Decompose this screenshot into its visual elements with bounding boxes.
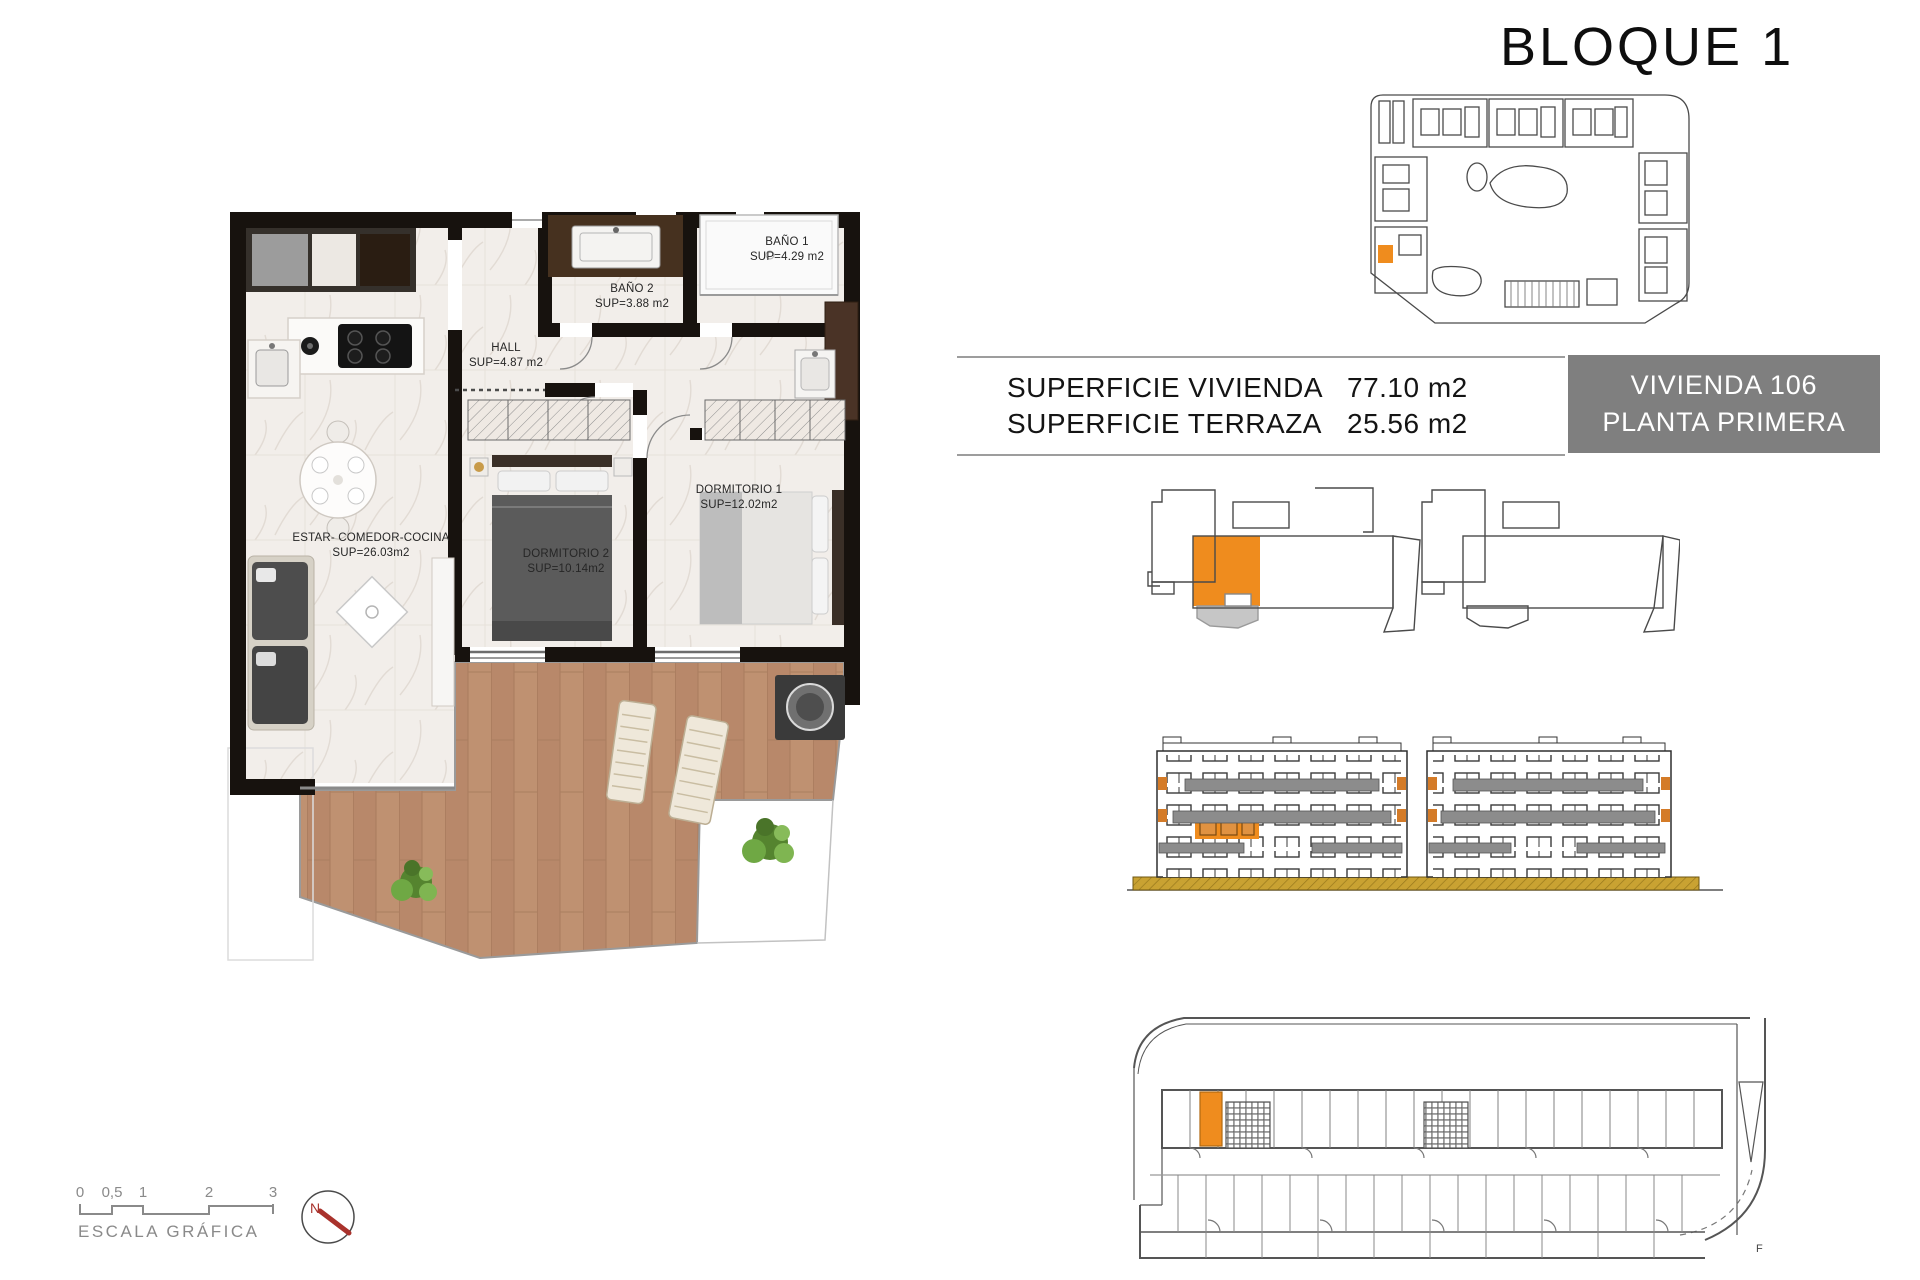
apartment-floor-plan — [215, 200, 875, 980]
building-elevation-right — [1427, 737, 1671, 877]
garage-plan: F — [1120, 1000, 1800, 1280]
surface-value: 77.10 m2 — [1347, 372, 1565, 404]
bathroom2-fixtures — [548, 215, 683, 277]
stair-core — [1424, 1102, 1468, 1148]
north-compass-icon: N — [296, 1185, 360, 1249]
scale-tick: 2 — [205, 1184, 213, 1201]
unit-number: VIVIENDA 106 — [1631, 367, 1818, 404]
ground-wall — [1133, 877, 1699, 890]
room-label-dormitorio2: DORMITORIO 2SUP=10.14m2 — [523, 547, 610, 577]
unit-location-plan — [1140, 480, 1680, 645]
highlighted-terrace-plan — [1197, 606, 1258, 628]
plan-corner-mark: F — [1756, 1243, 1763, 1255]
room-label-hall: HALLSUP=4.87 m2 — [469, 341, 543, 371]
surface-label: SUPERFICIE VIVIENDA — [1007, 372, 1347, 404]
highlighted-unit-site — [1378, 245, 1393, 263]
scale-caption: ESCALA GRÁFICA — [78, 1222, 259, 1242]
stair-core — [1226, 1102, 1270, 1148]
scale-tick: 3 — [269, 1184, 277, 1201]
water-heater — [775, 675, 845, 740]
plant — [742, 818, 794, 863]
scale-tick: 0,5 — [102, 1184, 123, 1201]
surface-table: SUPERFICIE VIVIENDA 77.10 m2 SUPERFICIE … — [957, 356, 1565, 456]
table-row: SUPERFICIE VIVIENDA 77.10 m2 — [957, 372, 1565, 404]
highlighted-storage-unit — [1200, 1092, 1222, 1146]
plan-sheet: BAÑO 1SUP=4.29 m2 BAÑO 2SUP=3.88 m2 HALL… — [0, 0, 1920, 1280]
surface-label: SUPERFICIE TERRAZA — [1007, 408, 1347, 440]
unit-identifier-box: VIVIENDA 106 PLANTA PRIMERA — [1568, 355, 1880, 453]
table-row: SUPERFICIE TERRAZA 25.56 m2 — [957, 408, 1565, 440]
surface-value: 25.56 m2 — [1347, 408, 1565, 440]
north-label: N — [310, 1200, 320, 1216]
room-label-bano2: BAÑO 2SUP=3.88 m2 — [595, 282, 669, 312]
bedroom2-furniture — [468, 400, 632, 641]
unit-floor: PLANTA PRIMERA — [1602, 404, 1845, 441]
room-label-bano1: BAÑO 1SUP=4.29 m2 — [750, 235, 824, 265]
elevation-drawings — [1125, 735, 1725, 905]
room-label-dormitorio1: DORMITORIO 1SUP=12.02m2 — [696, 483, 783, 513]
scale-tick: 0 — [76, 1184, 84, 1201]
scale-tick: 1 — [139, 1184, 147, 1201]
site-plan — [1355, 65, 1715, 345]
building-elevation-left — [1157, 737, 1407, 877]
room-label-estar: ESTAR- COMEDOR-COCINASUP=26.03m2 — [292, 531, 449, 561]
